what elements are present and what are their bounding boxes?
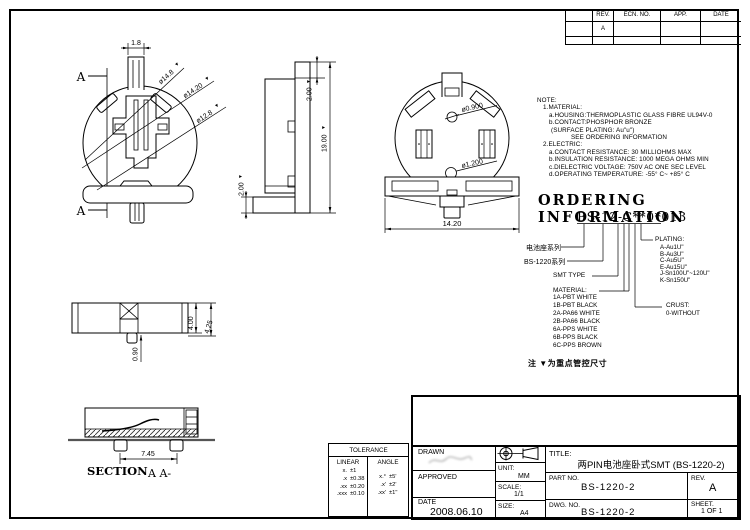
note-line: (SURFACE PLATING: Au"u") xyxy=(537,127,713,134)
dim-4-00: 4.00 xyxy=(188,316,195,330)
note-line: 1.MATERIAL: xyxy=(537,104,713,111)
tol-symbol: .xx xyxy=(332,484,350,492)
title-block: DRAWN APPROVED DATE 2008.06.10 UNIT: MM … xyxy=(411,395,741,520)
material-option: 6C-PPS BROWN xyxy=(553,342,602,350)
sheet-label: SHEET. xyxy=(691,501,714,508)
tolerance-angle-header: ANGLE xyxy=(368,457,408,468)
unit-label: UNIT: xyxy=(498,465,514,472)
rev-cell xyxy=(660,37,700,45)
rev-cell xyxy=(565,37,592,45)
part-no-label: PART NO. xyxy=(549,475,579,482)
rev-cell xyxy=(613,37,660,45)
dim-1-8: 1.8 xyxy=(131,40,141,47)
date-value: 2008.06.10 xyxy=(430,506,483,518)
bottom-pin xyxy=(130,203,144,223)
revision-table: REV. ECN. NO. APP. DATE A xyxy=(565,9,741,45)
section-view-label: SECTION xyxy=(87,464,148,478)
top-profile-view: 4.00 4.25 0.90 xyxy=(72,303,216,362)
key-dim-marker: ▼ xyxy=(204,75,211,83)
note-line: SEE ORDERING INFORMATION xyxy=(537,134,713,141)
ordering-plating-label: PLATING: xyxy=(655,236,684,243)
rev-cell xyxy=(660,22,700,37)
note-line: a.HOUSING:THERMOPLASTIC GLASS FIBRE UL94… xyxy=(537,112,713,119)
key-dim-marker: ▼ xyxy=(321,125,327,130)
unit-value: MM xyxy=(518,473,530,480)
key-dim-marker: ▼ xyxy=(173,61,181,69)
part-no-value: BS-1220-2 xyxy=(581,482,635,493)
note-line: 2.ELECTRIC: xyxy=(537,141,713,148)
date-label: DATE xyxy=(418,499,436,506)
tol-value: ±1" xyxy=(389,490,397,498)
dim-0-90: 0.90 xyxy=(133,347,140,361)
tol-symbol: x.° xyxy=(371,474,389,482)
key-dimension-note: 注 ▼为重点管控尺寸 xyxy=(528,358,607,369)
tolerance-linear-header: LINEAR xyxy=(329,457,367,468)
key-dim-marker: ▼ xyxy=(238,174,244,179)
tolerance-angle-column: ANGLE x.°±5' .x'±2' .xx'±1" xyxy=(368,457,408,516)
rev-col-ecn: ECN. NO. xyxy=(613,9,660,22)
dim-19-00: 19.00 xyxy=(322,134,329,152)
tol-value: ±0.10 xyxy=(350,491,364,499)
approved-label: APPROVED xyxy=(418,474,457,481)
rev-row1-letter: A xyxy=(592,22,613,37)
material-option: 2B-PA66 BLACK xyxy=(553,318,602,326)
dwg-no-label: DWG. NO. xyxy=(549,502,580,509)
profile-body xyxy=(72,303,188,333)
size-label: SIZE: xyxy=(498,503,514,510)
ordering-family-label: BS-1220系列 xyxy=(524,257,565,267)
rev-col-date: DATE xyxy=(700,9,741,22)
ordering-material-list: 1A-PBT WHITE 1B-PBT BLACK 2A-PA66 WHITE … xyxy=(553,294,602,350)
third-angle-projection-icon xyxy=(497,446,543,461)
tol-value: ±1 xyxy=(350,468,356,476)
ordering-material-label: MATERIAL: xyxy=(553,287,587,294)
note-line: a.CONTACT RESISTANCE: 30 MILLIOHMS MAX xyxy=(537,149,713,156)
ordering-crust-label: CRUST: xyxy=(666,302,689,309)
tol-value: ±0.20 xyxy=(350,484,364,492)
tol-symbol: .xxx xyxy=(332,491,350,499)
ordering-title: ORDERING INFORMATION xyxy=(538,192,750,226)
tolerance-block: TOLERANCE LINEAR x.±1 .x±0.38 .xx±0.20 .… xyxy=(328,443,409,517)
size-value: A4 xyxy=(520,510,529,517)
ordering-series-label: 电池座系列 xyxy=(526,243,561,253)
rev-cell xyxy=(592,37,613,45)
note-line: b.CONTACT:PHOSPHOR BRONZE xyxy=(537,119,713,126)
tol-symbol: x. xyxy=(332,468,350,476)
rev-value: A xyxy=(709,482,716,494)
key-dim-marker: ▼ xyxy=(213,102,220,110)
dim-14-20: 14.20 xyxy=(443,219,462,228)
tol-value: ±5' xyxy=(389,474,397,482)
drawn-signature xyxy=(427,454,473,467)
back-pin-block xyxy=(440,196,464,207)
material-option: 1B-PBT BLACK xyxy=(553,302,602,310)
dim-dia-0-900: ø0.900 xyxy=(461,102,484,114)
scale-label: SCALE: xyxy=(498,484,521,491)
rev-cell xyxy=(700,37,741,45)
rev-cell xyxy=(700,22,741,37)
profile-pin xyxy=(127,333,137,343)
note-line: b.INSULATION RESISTANCE: 1000 MEGA OHMS … xyxy=(537,156,713,163)
rev-label: REV. xyxy=(691,475,706,482)
dim-dia-12-8: ø12.8 xyxy=(195,109,214,125)
section-view-label-suffix: A A- xyxy=(147,467,171,480)
title-value: 两PIN电池座卧式SMT (BS-1220-2) xyxy=(565,457,737,471)
side-view: 2.00 ▼ 19.00 ▼ 2.00 ▼ xyxy=(238,56,336,219)
dwg-no-value: BS-1220-2 xyxy=(581,507,635,518)
dim-7-45: 7.45 xyxy=(141,451,155,458)
material-option: 1A-PBT WHITE xyxy=(553,294,602,302)
section-label-a-top: A xyxy=(76,70,86,84)
tol-symbol: .xx' xyxy=(371,490,389,498)
scale-value: 1/1 xyxy=(514,491,524,498)
back-slot-left xyxy=(405,91,435,117)
contact-housing xyxy=(113,96,169,168)
rev-col-app: APP. xyxy=(660,9,700,22)
smt-pin-left xyxy=(114,440,127,451)
rev-cell xyxy=(565,22,592,37)
crust-option: 0-WITHOUT xyxy=(666,311,700,318)
back-view: ø0.900 ø1.200 14.20 xyxy=(385,73,519,233)
notes-block: NOTE: 1.MATERIAL: a.HOUSING:THERMOPLASTI… xyxy=(537,97,713,178)
tol-symbol: .x' xyxy=(371,482,389,490)
tol-symbol: .x xyxy=(332,476,350,484)
ordering-plating-list: A-Au1U" B-Au3U" C-Au5U" E-Au15U" J-Sn100… xyxy=(660,245,710,285)
rev-cell xyxy=(565,9,592,22)
note-line: d.OPERATING TEMPERATURE: -55° C~ +85° C xyxy=(537,171,713,178)
dim-dia-1-200: ø1.200 xyxy=(461,158,484,170)
dim-dia-14-20: ø14.20 xyxy=(182,82,204,100)
side-foot xyxy=(253,197,295,213)
engineering-drawing-sheet: { "revision_table": { "col_rev": "REV.",… xyxy=(0,0,750,530)
material-option: 2A-PA66 WHITE xyxy=(553,310,602,318)
tol-value: ±2' xyxy=(389,482,397,490)
ordering-smt-label: SMT TYPE xyxy=(553,272,585,279)
sheet-value: 1 OF 1 xyxy=(701,508,722,515)
section-label-a-bottom: A xyxy=(76,204,86,218)
tolerance-title: TOLERANCE xyxy=(329,444,408,457)
material-option: 6B-PPS BLACK xyxy=(553,334,602,342)
note-line: c.DIELECTRIC VOLTAGE: 750V AC ONE SEC LE… xyxy=(537,164,713,171)
material-option: 6A-PPS WHITE xyxy=(553,326,602,334)
tolerance-linear-column: LINEAR x.±1 .x±0.38 .xx±0.20 .xxx±0.10 xyxy=(329,457,368,516)
rev-col-rev: REV. xyxy=(592,9,613,22)
front-view: A A 1.8 ø14.8 ▼ xyxy=(76,40,226,223)
top-post xyxy=(128,57,144,90)
dim-4-25: 4.25 xyxy=(204,319,215,334)
plating-option: K-Sn150U" xyxy=(660,278,710,285)
dim-2-00-top: 2.00 xyxy=(307,87,314,101)
smt-pin-right xyxy=(170,440,183,451)
section-aa-view: 7.45 SECTION A A- xyxy=(68,408,215,480)
dim-dia-14-8: ø14.8 xyxy=(157,69,175,86)
note-line: NOTE: xyxy=(537,97,713,104)
rev-cell xyxy=(613,22,660,37)
key-dim-marker: ▼ xyxy=(306,79,312,84)
tol-value: ±0.38 xyxy=(350,476,364,484)
dim-2-00-bottom: 2.00 xyxy=(239,182,246,196)
hatched-base xyxy=(86,429,198,437)
